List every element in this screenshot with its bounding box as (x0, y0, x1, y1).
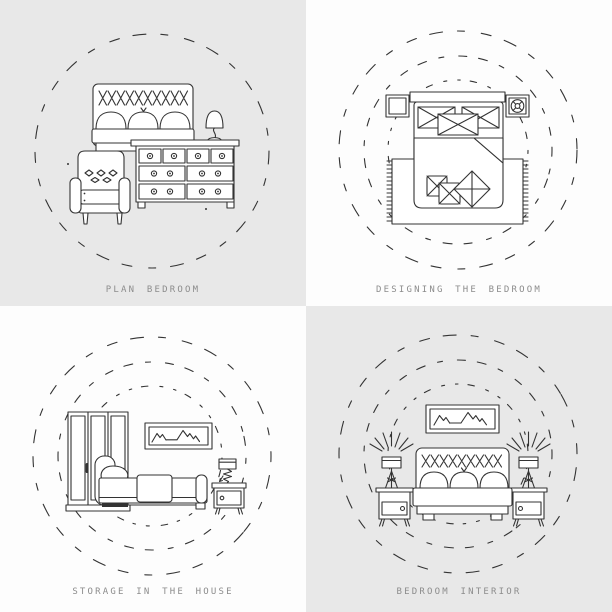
panel-caption: PLAN BEDROOM (0, 285, 306, 295)
chair-leg (83, 213, 88, 224)
nightstand-top (510, 488, 547, 492)
mattress (413, 488, 512, 506)
armchair-icon (70, 151, 130, 224)
panel-plan-bedroom: PLAN BEDROOM (0, 0, 306, 306)
drawer (139, 166, 185, 181)
panel-bedroom-interior: BEDROOM INTERIOR (306, 306, 612, 612)
door-handle (86, 463, 89, 473)
lamp-spring (224, 469, 232, 483)
chair-apron (79, 204, 125, 213)
plant-on-table-icon (506, 95, 529, 117)
designing-bedroom-illustration (306, 0, 612, 306)
bed-base (102, 503, 128, 507)
single-bed-icon (95, 456, 207, 509)
panel-storage-in-the-house: STORAGE IN THE HOUSE (0, 306, 306, 612)
drawer (187, 166, 233, 181)
bed-foot (491, 514, 502, 520)
storage-illustration (0, 306, 306, 612)
drawer (382, 502, 407, 515)
blanket-roll (196, 475, 207, 503)
bedroom-interior-illustration (306, 306, 612, 612)
armrest (119, 178, 130, 213)
bedside-table-icon (386, 95, 409, 117)
nightstand-top (376, 488, 413, 492)
dashed-circles (0, 306, 306, 612)
pillow-icon (160, 112, 190, 131)
nightstand-legs (216, 508, 243, 514)
dresser-top (131, 140, 239, 146)
pillow-icon (96, 112, 126, 131)
lamp-shade (382, 457, 401, 468)
blanket (137, 475, 172, 502)
lamp-stand (523, 468, 535, 488)
plan-bedroom-illustration (0, 0, 306, 306)
nightstand-top (212, 483, 246, 488)
pillow-icon (128, 112, 158, 131)
nightstand-legs (380, 519, 410, 526)
panel-caption: STORAGE IN THE HOUSE (0, 587, 306, 597)
bedroom-line-illustration-poster: PLAN BEDROOM (0, 0, 612, 612)
headboard-bar-icon (410, 92, 505, 102)
nightstand-icon (510, 488, 547, 526)
panel-designing-the-bedroom: DESIGNING THE BEDROOM (306, 0, 612, 306)
table-lamp-icon (206, 111, 223, 141)
lamp-shade (519, 457, 538, 468)
nightstand-icon (212, 483, 246, 514)
dresser-icon (131, 140, 239, 208)
table-lamp-icon (382, 457, 401, 488)
lamp-shade (219, 459, 236, 469)
dresser-leg (227, 202, 234, 208)
panel-caption: BEDROOM INTERIOR (306, 587, 612, 597)
armrest (70, 178, 81, 213)
nightstand-legs (514, 519, 544, 526)
double-bed-icon (413, 448, 512, 520)
bed-base (417, 506, 508, 514)
chair-leg (117, 213, 122, 224)
bed-foot (423, 514, 434, 520)
mountain-picture-frame-icon (145, 423, 212, 449)
lamp-arrow (220, 476, 224, 482)
seat-cushion (80, 190, 124, 204)
nightstand-icon (376, 488, 413, 526)
drawer (516, 502, 541, 515)
lamp-stand (386, 468, 398, 488)
spring-lamp-icon (219, 459, 236, 483)
mountain-picture-frame-icon (426, 405, 499, 433)
bed-leg (196, 503, 205, 509)
panel-caption: DESIGNING THE BEDROOM (306, 285, 612, 295)
drawer (187, 184, 233, 199)
dresser-leg (138, 202, 145, 208)
drawer (139, 184, 185, 199)
